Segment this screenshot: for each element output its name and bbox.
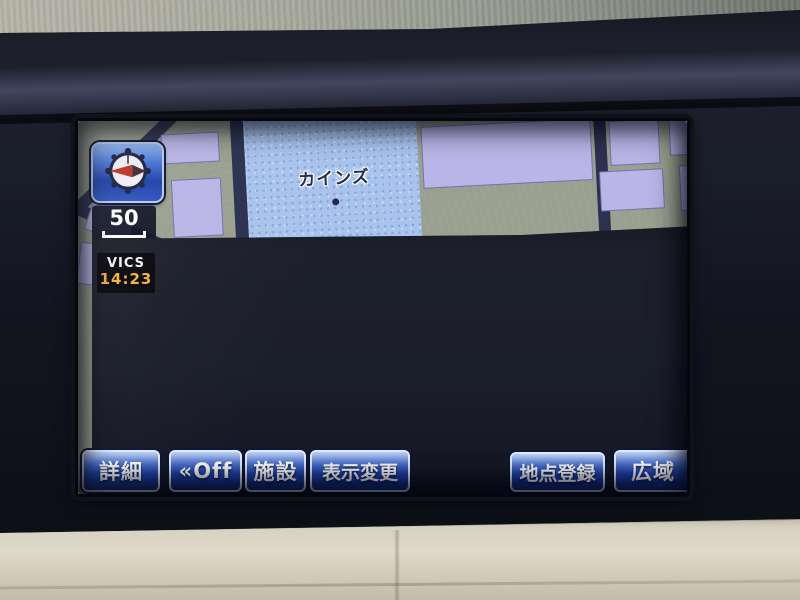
display-change-button[interactable]: 表示変更	[310, 450, 410, 492]
facilities-button[interactable]: 施設	[245, 450, 306, 492]
vics-time: 14:23	[97, 271, 155, 288]
compass-icon	[105, 148, 151, 198]
register-point-button[interactable]: 地点登録	[510, 452, 605, 492]
map-building	[160, 131, 219, 164]
scale-value: 50	[109, 206, 138, 230]
off-button[interactable]: «Off	[169, 450, 242, 492]
compass-button[interactable]	[91, 142, 164, 203]
wide-area-zoom-out-button[interactable]: 広域	[614, 450, 690, 492]
map-building	[608, 118, 660, 166]
vics-label: VICS	[97, 256, 155, 271]
dashboard-seam	[394, 530, 400, 600]
scale-bracket	[102, 231, 146, 238]
nav-screen: カインズ 習志野 コバシ 協同乳業	[75, 118, 690, 497]
vics-badge: VICS 14:23	[97, 253, 155, 293]
map-building	[679, 164, 690, 212]
map-building	[599, 168, 665, 211]
map-building	[171, 177, 224, 238]
scale-badge: 50m	[92, 205, 156, 247]
detail-zoom-in-button[interactable]: 詳細	[82, 450, 160, 492]
map-building	[420, 118, 593, 189]
car-dashboard: カインズ 習志野 コバシ 協同乳業	[0, 0, 800, 600]
map-label-store: カインズ	[297, 162, 370, 191]
map-building	[668, 118, 690, 156]
